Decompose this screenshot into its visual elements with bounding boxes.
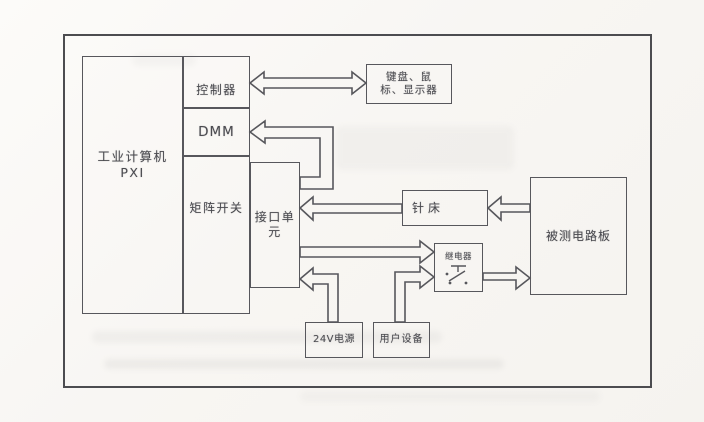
node-matrix-switch: 矩阵开关 [183,156,250,314]
node-label: 矩阵开关 [189,201,243,216]
arrow-relay-to-board [483,267,530,289]
arrow-24v-to-interface [300,268,338,322]
node-relay: 继电器 [434,243,483,292]
arrow-board-to-needlebed [488,197,530,220]
arrow-interface-to-relay [300,241,434,263]
arrow-controller-keyboard-bidirectional [250,72,366,94]
node-label: 元 [268,225,282,240]
scanned-diagram-page: 工业计算机 PXI 控制器 DMM 矩阵开关 接口单 元 键盘、鼠 标、显示器 … [0,0,704,422]
node-industrial-computer-pxi: 工业计算机 PXI [82,56,183,314]
node-board-under-test: 被测电路板 [530,177,627,295]
node-needle-bed: 针床 [402,190,488,226]
node-label: 24V电源 [313,334,355,347]
node-label: 继电器 [445,252,472,263]
node-label: 用户设备 [380,334,424,347]
node-label: DMM [198,124,235,141]
node-label: 被测电路板 [546,229,611,244]
node-label: 键盘、鼠 [386,71,432,84]
node-label: 接口单 [255,210,296,225]
arrow-needlebed-to-interface [300,197,402,220]
node-label: 标、显示器 [380,84,438,97]
node-label: 控制器 [196,83,237,98]
node-interface-unit: 接口单 元 [250,162,300,288]
node-keyboard-mouse-display: 键盘、鼠 标、显示器 [366,64,452,104]
node-label: 针床 [412,201,444,216]
node-label: 工业计算机 [97,149,167,165]
node-label: PXI [120,165,144,181]
node-dmm: DMM [183,108,250,156]
node-controller: 控制器 [183,56,250,108]
node-user-equipment: 用户设备 [373,322,430,358]
arrow-user-equipment-to-relay [395,266,434,322]
node-24v-power: 24V电源 [305,322,363,358]
